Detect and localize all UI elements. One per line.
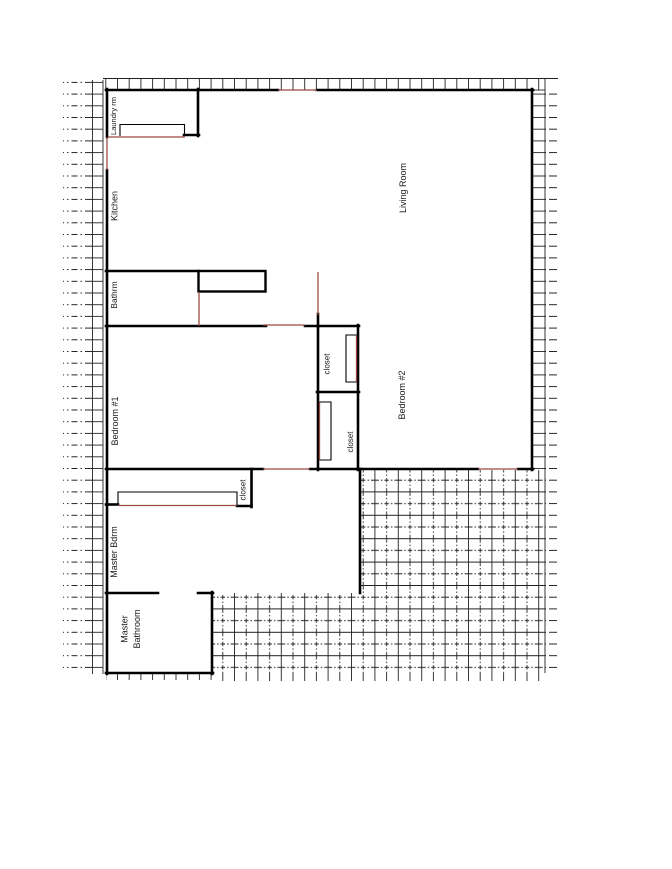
hatch-ticks-bottom-right (212, 673, 545, 681)
label-closet-bedroom2-upper: closet (323, 353, 332, 375)
label-closet-bedroom2-lower: closet (346, 431, 355, 453)
master-closet-shelf (118, 492, 237, 505)
label-bathrm: Bathrm (109, 281, 119, 308)
label-master-bathroom-line1: Master (120, 615, 130, 643)
closet-upper-shelf (346, 335, 357, 382)
label-laundry-rm: Laundry rm (109, 97, 118, 135)
hatch-dashes-left (63, 80, 92, 674)
bath-tub-outline (199, 271, 266, 292)
label-master-bathroom-line2: Bathroom (132, 609, 142, 648)
label-kitchen: Kitchen (110, 191, 120, 221)
hatch-border-left (63, 80, 103, 674)
label-master-bdrm: Master Bdrm (109, 526, 119, 578)
label-closet-master: closet (239, 479, 248, 501)
label-bedroom-2: Bedroom #2 (397, 370, 407, 419)
fixtures (118, 125, 357, 506)
hatch-ticks-bottom-left (106, 674, 213, 680)
outdoor-grid-region (106, 470, 545, 681)
door-window-openings (107, 90, 518, 506)
hatch-dashes-right (545, 90, 558, 673)
closet-lower-shelf (320, 402, 332, 460)
laundry-counter (120, 125, 185, 137)
label-living-room: Living Room (398, 163, 408, 213)
hatch-border-top (103, 78, 558, 90)
floor-plan-canvas: Laundry rm Kitchen Living Room Bathrm Be… (0, 0, 672, 869)
label-bedroom-1: Bedroom #1 (110, 396, 120, 445)
floor-plan-page: Laundry rm Kitchen Living Room Bathrm Be… (0, 0, 672, 869)
